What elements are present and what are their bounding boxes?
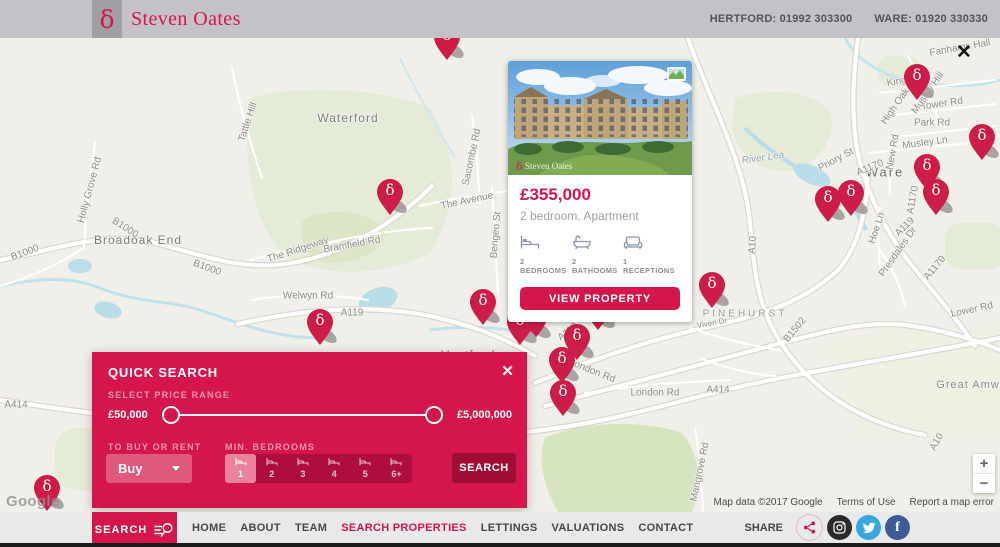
bath-icon — [572, 235, 623, 254]
header: δ Steven Oates HERTFORD: 01992 303300WAR… — [0, 0, 1000, 38]
nav-item-valuations[interactable]: VALUATIONS — [552, 522, 625, 534]
gallery-icon — [667, 67, 686, 81]
price-max-handle[interactable] — [425, 406, 443, 424]
property-pin[interactable]: δ — [904, 64, 930, 100]
property-pin[interactable]: δ — [434, 38, 460, 60]
buy-rent-select[interactable]: Buy — [106, 454, 192, 483]
bedrooms-group: 123456+ — [225, 454, 412, 483]
share-social-group: SHARE f — [744, 512, 910, 543]
instagram-button[interactable] — [827, 515, 852, 540]
bed-icon — [235, 458, 247, 468]
bed-icon — [390, 458, 402, 468]
map-label: London Rd — [631, 388, 680, 399]
map-label: A119 — [341, 308, 364, 319]
bedrooms-option-label: 4 — [332, 469, 337, 479]
map-label: A10 — [747, 236, 760, 255]
map-zoom-control: + − — [973, 454, 995, 493]
bed-icon — [266, 458, 278, 468]
property-pin[interactable]: δ — [550, 380, 576, 416]
nav-item-lettings[interactable]: LETTINGS — [481, 522, 538, 534]
quick-search-close-icon[interactable]: ✕ — [501, 362, 514, 380]
watermark-delta-icon: δ — [516, 160, 523, 173]
property-pin[interactable]: δ — [307, 309, 333, 345]
price-range-slider: £50,000 £5,000,000 — [108, 404, 512, 426]
price-min-handle[interactable] — [162, 406, 180, 424]
property-pin[interactable]: δ — [969, 124, 995, 160]
share-label: SHARE — [744, 522, 783, 534]
map-label: A414 — [4, 400, 27, 411]
report-map-error-link[interactable]: Report a map error — [910, 497, 994, 508]
buy-rent-label: TO BUY OR RENT — [108, 442, 201, 452]
property-pin[interactable]: δ — [699, 272, 725, 308]
bed-icon — [359, 458, 371, 468]
map-label: Welwyn Rd — [283, 291, 333, 302]
nav-item-contact[interactable]: CONTACT — [638, 522, 693, 534]
bedrooms-option-4[interactable]: 4 — [319, 454, 350, 483]
search-tab[interactable]: SEARCH — [92, 512, 177, 547]
map-label: A414 — [706, 385, 729, 396]
watermark-text: Steven Oates — [525, 161, 573, 171]
map-data-text: Map data ©2017 Google — [713, 497, 822, 508]
bed-icon — [297, 458, 309, 468]
phone-number-1: WARE: 01920 330330 — [874, 13, 988, 25]
bedrooms-option-label: 2 — [269, 469, 274, 479]
property-pin[interactable]: δ — [377, 179, 403, 215]
nav-item-about[interactable]: ABOUT — [240, 522, 281, 534]
brand-delta-icon: δ — [99, 7, 114, 32]
quick-search-title: QUICK SEARCH — [108, 365, 218, 380]
view-property-button[interactable]: VIEW PROPERTY — [520, 287, 680, 310]
buy-rent-value: Buy — [118, 461, 143, 476]
map-label: Broadoak End — [94, 233, 182, 247]
zoom-out-button[interactable]: − — [973, 473, 995, 493]
twitter-icon — [862, 522, 876, 534]
map-label: Great Amwell — [936, 379, 1000, 391]
property-subtitle: 2 bedroom. Apartment — [520, 209, 680, 223]
sofa-icon — [623, 235, 680, 254]
property-features: 2 BEDROOMS2 BATHOOMS1 RECEPTIONS — [520, 235, 680, 275]
bedrooms-option-label: 6+ — [391, 469, 401, 479]
property-feature: 2 BEDROOMS — [520, 235, 572, 275]
property-photo[interactable]: δ Steven Oates — [508, 61, 692, 175]
map-label: Park Rd — [914, 118, 950, 129]
facebook-icon: f — [895, 520, 900, 536]
bottom-bar: SEARCH HOMEABOUTTEAMSEARCH PROPERTIESLET… — [0, 512, 1000, 547]
property-card-body: £355,000 2 bedroom. Apartment 2 BEDROOMS… — [508, 175, 692, 322]
property-feature: 2 BATHOOMS — [572, 235, 623, 275]
feature-label: 1 RECEPTIONS — [623, 257, 680, 275]
quick-search-panel: QUICK SEARCH ✕ SELECT PRICE RANGE £50,00… — [92, 352, 527, 508]
bedrooms-option-1[interactable]: 1 — [225, 454, 256, 483]
price-max-value: £5,000,000 — [457, 409, 512, 421]
facebook-button[interactable]: f — [885, 515, 910, 540]
bedrooms-option-label: 5 — [363, 469, 368, 479]
brand-name[interactable]: Steven Oates — [131, 0, 241, 38]
terms-of-use-link[interactable]: Terms of Use — [837, 497, 896, 508]
property-pin[interactable]: δ — [838, 180, 864, 216]
chevron-down-icon — [172, 466, 180, 471]
property-info-card: δ Steven Oates £355,000 2 bedroom. Apart… — [508, 61, 692, 322]
nav-item-search-properties[interactable]: SEARCH PROPERTIES — [341, 522, 467, 534]
bed-icon — [328, 458, 340, 468]
quick-search-submit-button[interactable]: SEARCH — [452, 453, 516, 483]
search-tab-label: SEARCH — [95, 524, 147, 536]
bedrooms-option-5[interactable]: 5 — [350, 454, 381, 483]
map-close-icon[interactable]: ✕ — [956, 41, 972, 64]
header-phones: HERTFORD: 01992 303300WARE: 01920 330330 — [710, 0, 988, 38]
bedrooms-option-2[interactable]: 2 — [256, 454, 287, 483]
bed-icon — [520, 235, 572, 254]
share-icon — [803, 521, 816, 534]
main-nav: HOMEABOUTTEAMSEARCH PROPERTIESLETTINGSVA… — [192, 512, 693, 543]
search-icon — [154, 522, 174, 538]
property-price: £355,000 — [520, 185, 680, 205]
property-pin[interactable]: δ — [549, 347, 575, 383]
twitter-button[interactable] — [856, 515, 881, 540]
google-logo: Google — [6, 493, 59, 510]
slider-track[interactable] — [162, 414, 443, 416]
share-button[interactable] — [796, 514, 823, 541]
property-feature: 1 RECEPTIONS — [623, 235, 680, 275]
brand-logo[interactable]: δ — [92, 0, 122, 38]
zoom-in-button[interactable]: + — [973, 454, 995, 473]
min-bedrooms-label: MIN. BEDROOMS — [225, 442, 315, 452]
nav-item-team[interactable]: TEAM — [295, 522, 327, 534]
feature-label: 2 BATHOOMS — [572, 257, 623, 275]
nav-item-home[interactable]: HOME — [192, 522, 226, 534]
page: WaterfordBroadoak EndHertfordWarePINEHUR… — [0, 0, 1000, 547]
property-pin[interactable]: δ — [923, 179, 949, 215]
map-label: Waterford — [317, 111, 378, 125]
phone-number-0: HERTFORD: 01992 303300 — [710, 13, 853, 25]
bedrooms-option-6+[interactable]: 6+ — [381, 454, 412, 483]
bedrooms-option-3[interactable]: 3 — [287, 454, 318, 483]
map-attribution: Map data ©2017 Google Terms of Use Repor… — [713, 497, 994, 508]
feature-label: 2 BEDROOMS — [520, 257, 572, 275]
instagram-icon — [833, 521, 846, 534]
property-pin[interactable]: δ — [470, 289, 496, 325]
price-min-value: £50,000 — [108, 409, 148, 421]
bedrooms-option-label: 3 — [300, 469, 305, 479]
price-range-label: SELECT PRICE RANGE — [108, 390, 230, 400]
bedrooms-option-label: 1 — [238, 469, 243, 479]
